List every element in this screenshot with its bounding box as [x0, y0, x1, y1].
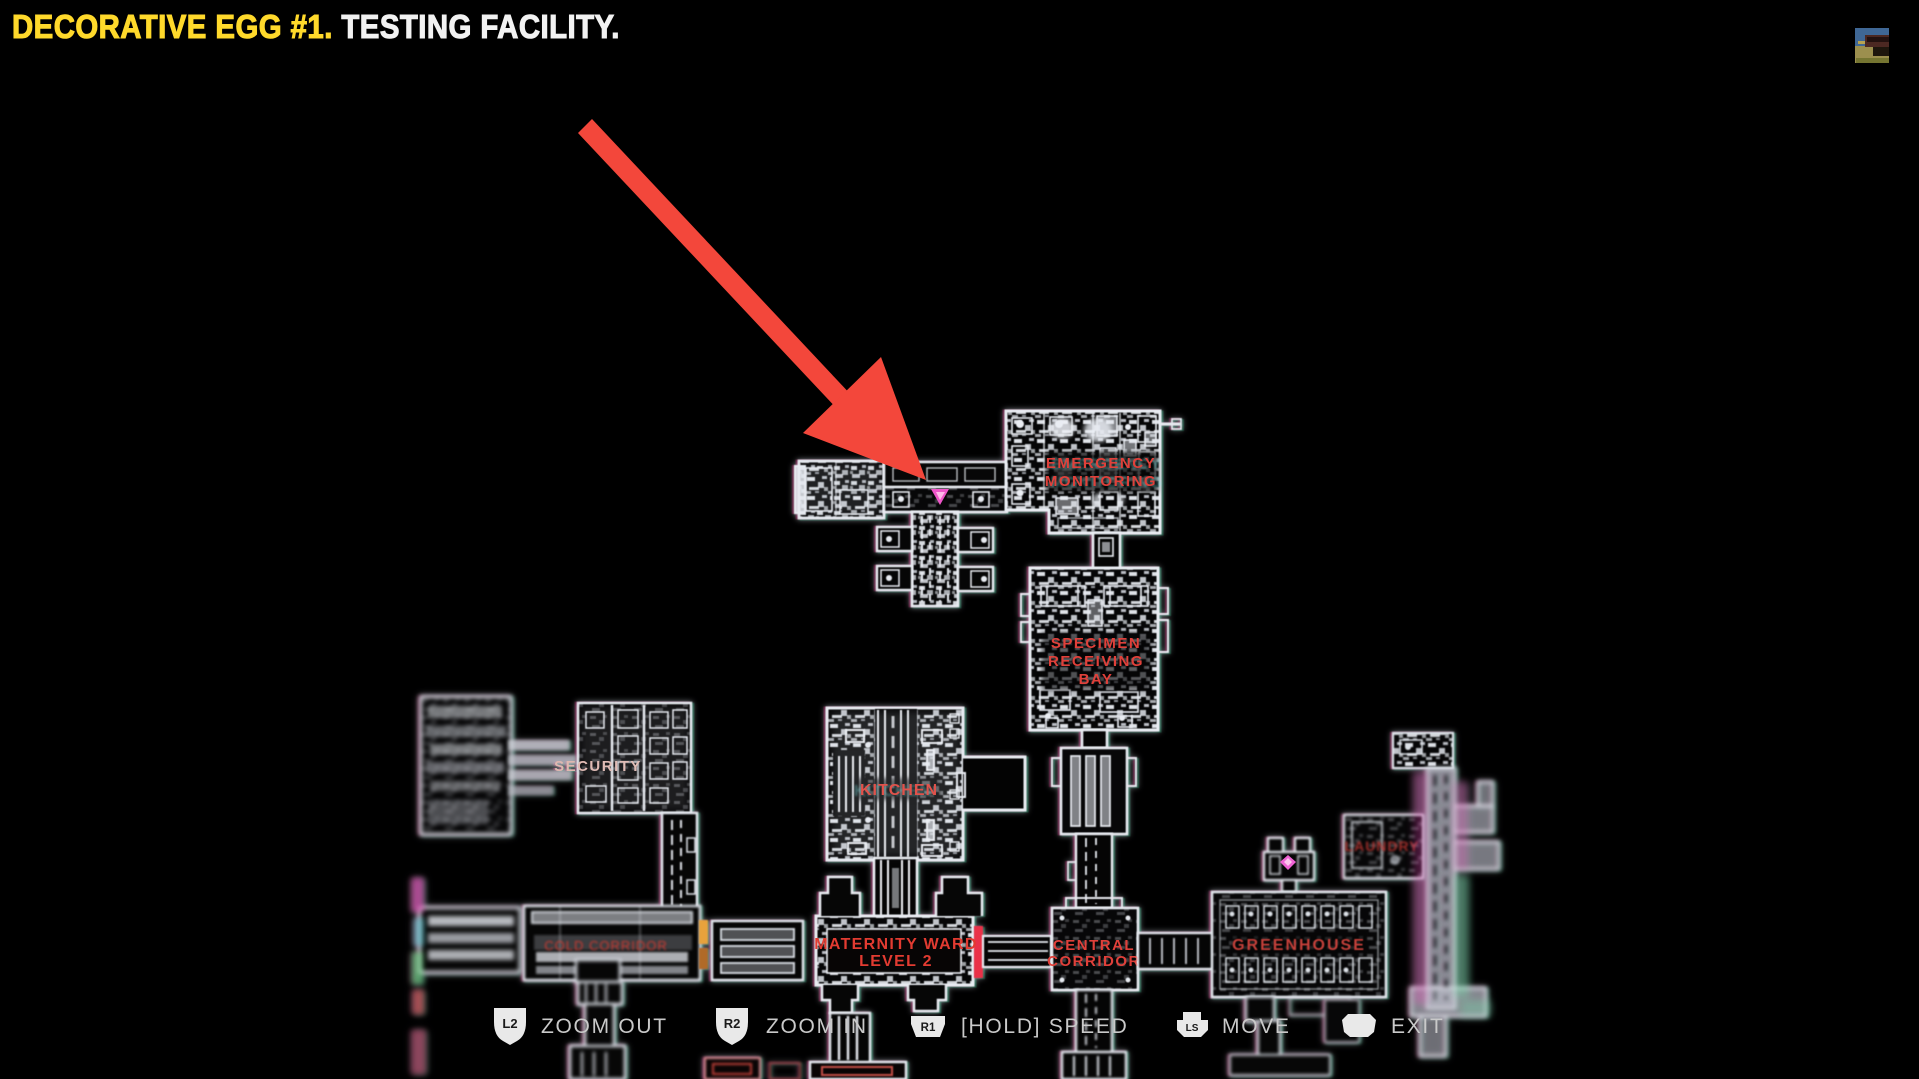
svg-text:MONITORING: MONITORING: [1045, 473, 1157, 490]
svg-text:MATERNITY WARD: MATERNITY WARD: [814, 936, 977, 953]
svg-text:GREENHOUSE: GREENHOUSE: [1232, 937, 1366, 954]
svg-text:L2: L2: [502, 1016, 517, 1031]
svg-text:LEVEL 2: LEVEL 2: [859, 953, 933, 970]
svg-text:R2: R2: [724, 1016, 741, 1031]
svg-text:COLD CORRIDOR: COLD CORRIDOR: [544, 938, 668, 953]
svg-text:LAUNDRY: LAUNDRY: [1345, 838, 1420, 854]
svg-text:LS: LS: [1186, 1023, 1199, 1034]
svg-text:SPECIMEN: SPECIMEN: [1051, 635, 1141, 652]
svg-text:BAY: BAY: [1079, 671, 1114, 688]
svg-text:RECEIVING: RECEIVING: [1048, 653, 1144, 670]
svg-text:CENTRAL: CENTRAL: [1053, 937, 1135, 954]
svg-text:R1: R1: [921, 1022, 936, 1034]
svg-text:CORRIDOR: CORRIDOR: [1047, 953, 1141, 970]
svg-text:EMERGENCY: EMERGENCY: [1046, 455, 1156, 472]
